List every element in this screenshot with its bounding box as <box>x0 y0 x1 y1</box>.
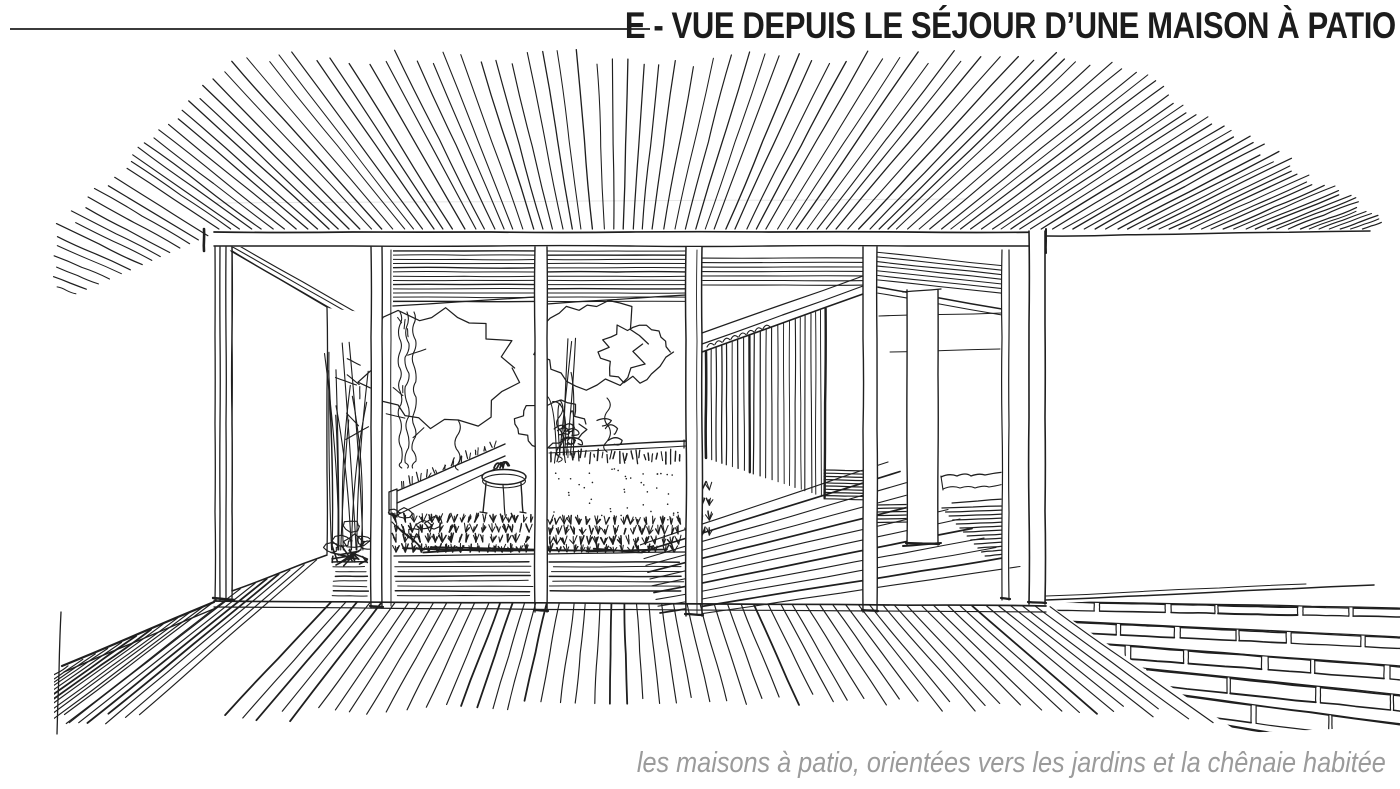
architectural-sketch <box>0 0 1400 789</box>
caption: les maisons à patio, orientées vers les … <box>637 747 1386 780</box>
patio-sketch-canvas <box>0 0 1400 789</box>
page: E - VUE DEPUIS LE SÉJOUR D’UNE MAISON À … <box>0 0 1400 789</box>
